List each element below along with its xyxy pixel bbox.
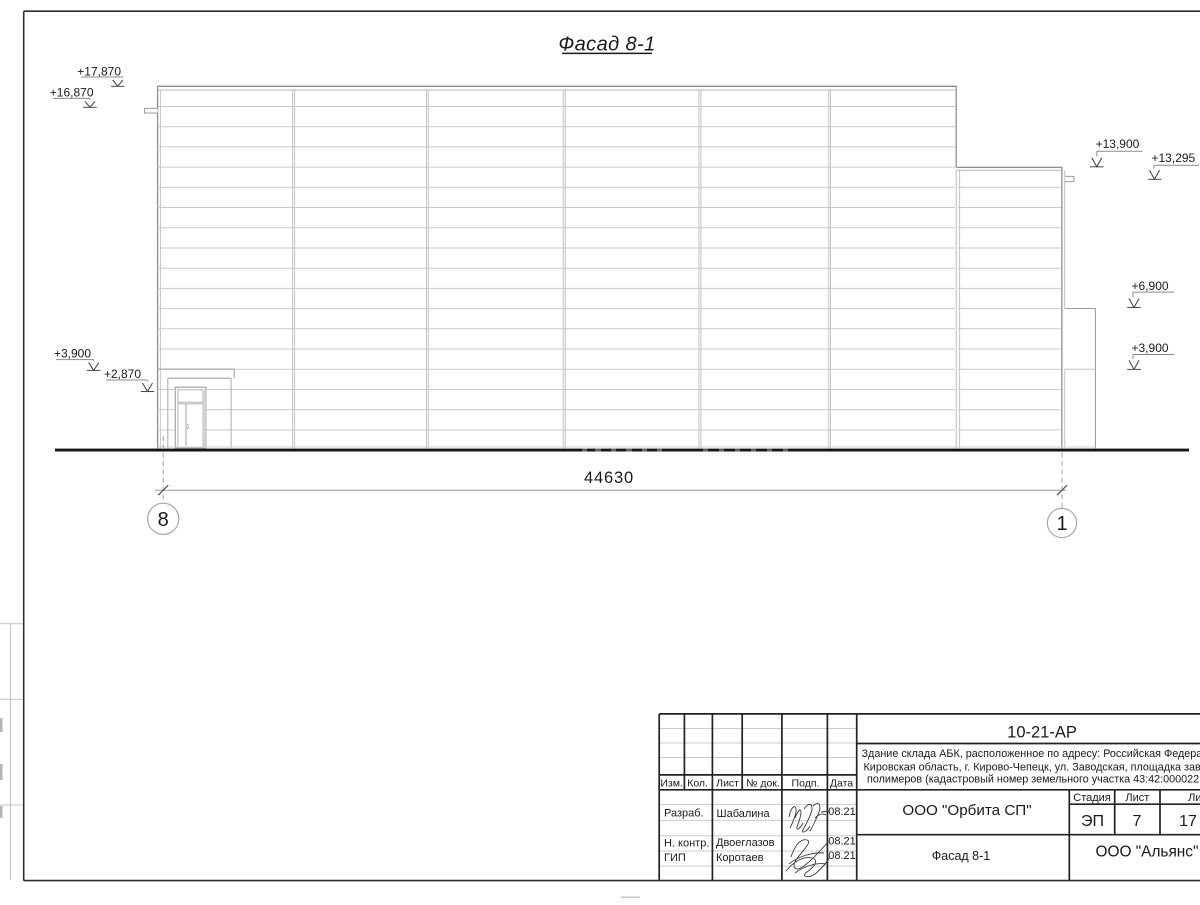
- svg-text:Лист: Лист: [1125, 792, 1149, 804]
- svg-text:Двоеглазов: Двоеглазов: [716, 837, 775, 849]
- svg-text:+3,900: +3,900: [1132, 341, 1169, 355]
- svg-text:17: 17: [1179, 813, 1197, 830]
- svg-text:44630: 44630: [584, 469, 634, 487]
- svg-text:+13,900: +13,900: [1096, 137, 1140, 151]
- svg-text:10-21-АР: 10-21-АР: [1007, 724, 1077, 742]
- svg-text:Фасад 8-1: Фасад 8-1: [558, 34, 655, 56]
- svg-text:ЭП: ЭП: [1081, 813, 1104, 830]
- svg-text:Дата: Дата: [830, 777, 853, 789]
- svg-text:Коротаев: Коротаев: [716, 852, 764, 864]
- svg-text:Здание склада АБК, расположенн: Здание склада АБК, расположенное по адре…: [862, 748, 1200, 760]
- svg-text:ООО "Орбита СП": ООО "Орбита СП": [902, 802, 1031, 819]
- svg-text:+6,900: +6,900: [1132, 279, 1169, 293]
- svg-text:ООО "Альянс": ООО "Альянс": [1096, 844, 1199, 861]
- svg-text:8: 8: [158, 509, 169, 531]
- svg-text:08.21: 08.21: [828, 806, 856, 818]
- svg-text:Н. контр.: Н. контр.: [664, 838, 709, 850]
- svg-text:полимеров (кадастровый номер з: полимеров (кадастровый номер земельного …: [867, 774, 1200, 786]
- svg-text:+16,870: +16,870: [50, 86, 94, 100]
- svg-text:Фасад 8-1: Фасад 8-1: [932, 849, 991, 863]
- svg-text:08.21: 08.21: [828, 850, 856, 862]
- svg-text:Лист: Лист: [716, 777, 739, 789]
- svg-text:1: 1: [1056, 513, 1067, 535]
- svg-text:Подп.: Подп.: [792, 777, 820, 789]
- svg-text:Кировская область, г. Кирово-Ч: Кировская область, г. Кирово-Чепецк, ул.…: [864, 762, 1200, 774]
- svg-text:+3,900: +3,900: [54, 347, 91, 361]
- svg-text:Кол.: Кол.: [687, 777, 708, 789]
- svg-text:+13,295: +13,295: [1152, 151, 1196, 165]
- svg-text:7: 7: [1133, 813, 1142, 830]
- svg-text:ГИП: ГИП: [664, 852, 686, 864]
- svg-text:Стадия: Стадия: [1073, 792, 1111, 804]
- svg-text:Шабалина: Шабалина: [717, 808, 771, 820]
- svg-text:+2,870: +2,870: [104, 367, 141, 381]
- svg-text:Изм.: Изм.: [660, 777, 683, 789]
- svg-text:№ док.: № док.: [746, 777, 780, 789]
- svg-text:08.21: 08.21: [828, 836, 856, 848]
- svg-text:+17,870: +17,870: [77, 65, 121, 79]
- svg-text:Листов: Листов: [1188, 792, 1200, 804]
- svg-text:Разраб.: Разраб.: [664, 808, 704, 820]
